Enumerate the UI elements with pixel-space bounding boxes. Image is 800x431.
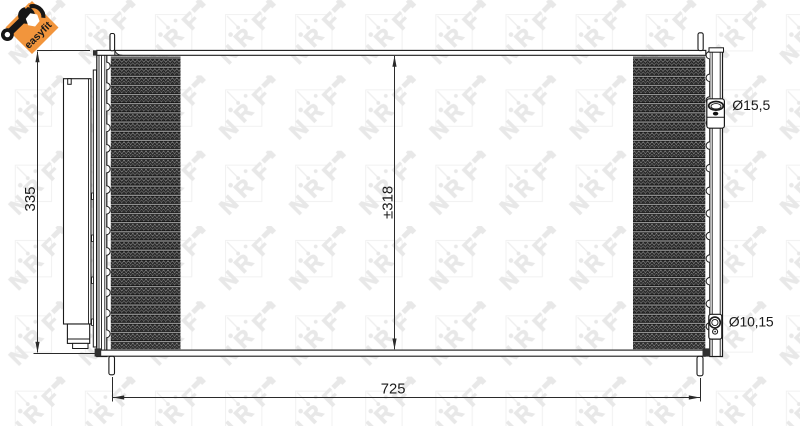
svg-text:±318: ±318: [379, 186, 396, 219]
svg-text:725: 725: [381, 382, 406, 398]
svg-text:Ø10,15: Ø10,15: [729, 313, 774, 329]
svg-text:335: 335: [22, 186, 39, 211]
svg-text:Ø15,5: Ø15,5: [732, 97, 770, 113]
